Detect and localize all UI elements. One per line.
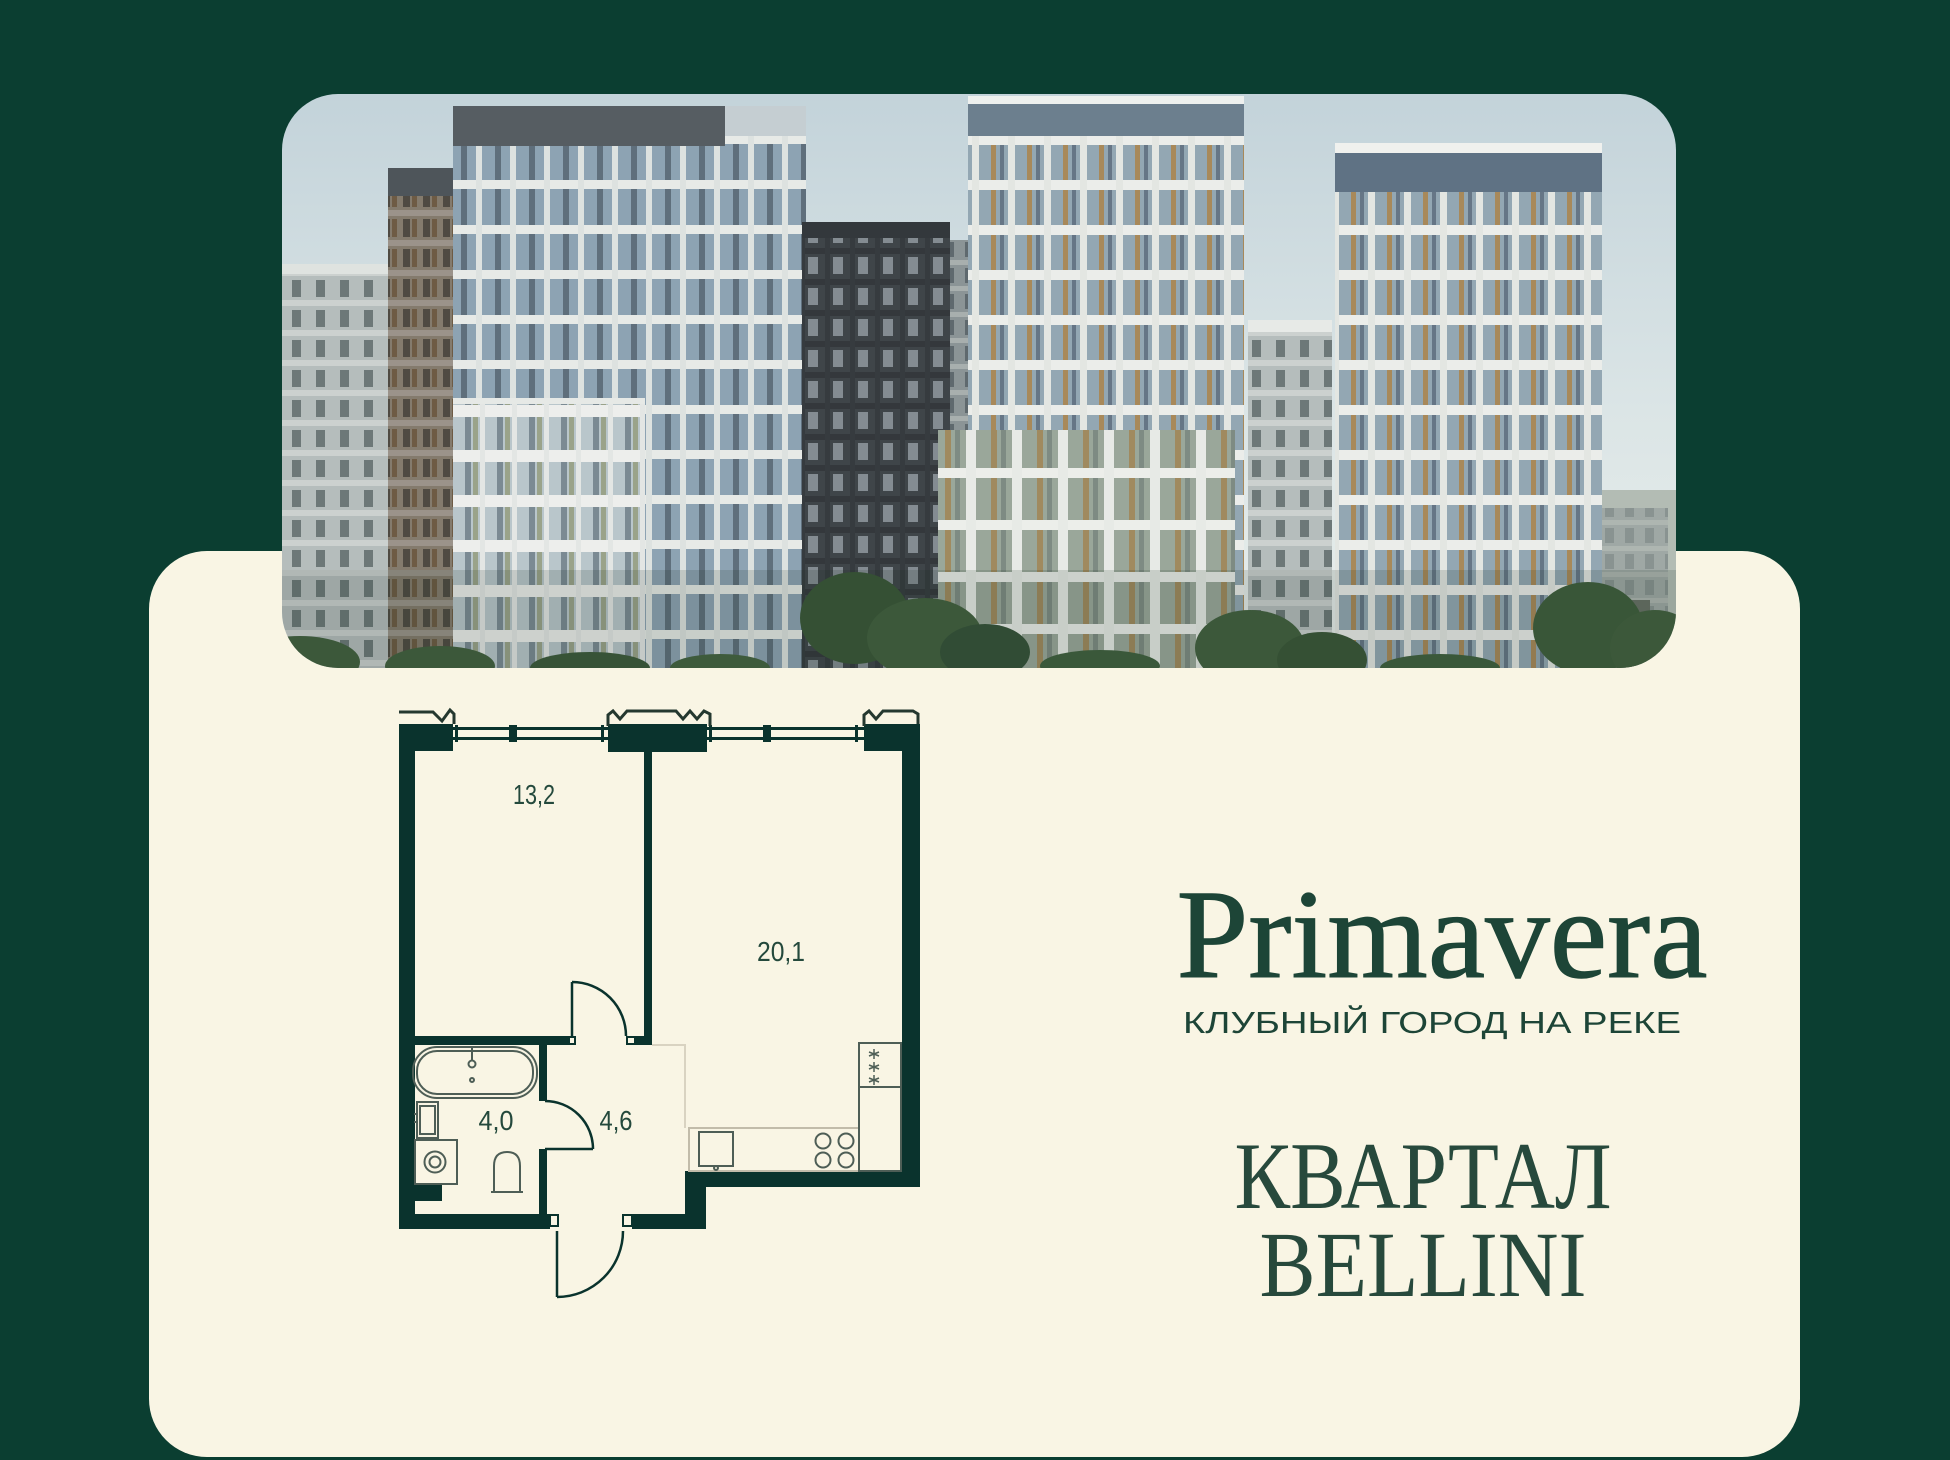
svg-text:13,2: 13,2 xyxy=(513,779,555,810)
svg-text:4,0: 4,0 xyxy=(479,1105,514,1136)
svg-text:20,1: 20,1 xyxy=(757,936,805,967)
svg-text:КЛУБНЫЙ ГОРОД НА РЕКЕ: КЛУБНЫЙ ГОРОД НА РЕКЕ xyxy=(1183,1004,1681,1040)
svg-text:4,6: 4,6 xyxy=(600,1105,633,1136)
svg-text:BELLINI: BELLINI xyxy=(1260,1214,1587,1317)
svg-text:Primavera: Primavera xyxy=(1177,865,1708,1005)
